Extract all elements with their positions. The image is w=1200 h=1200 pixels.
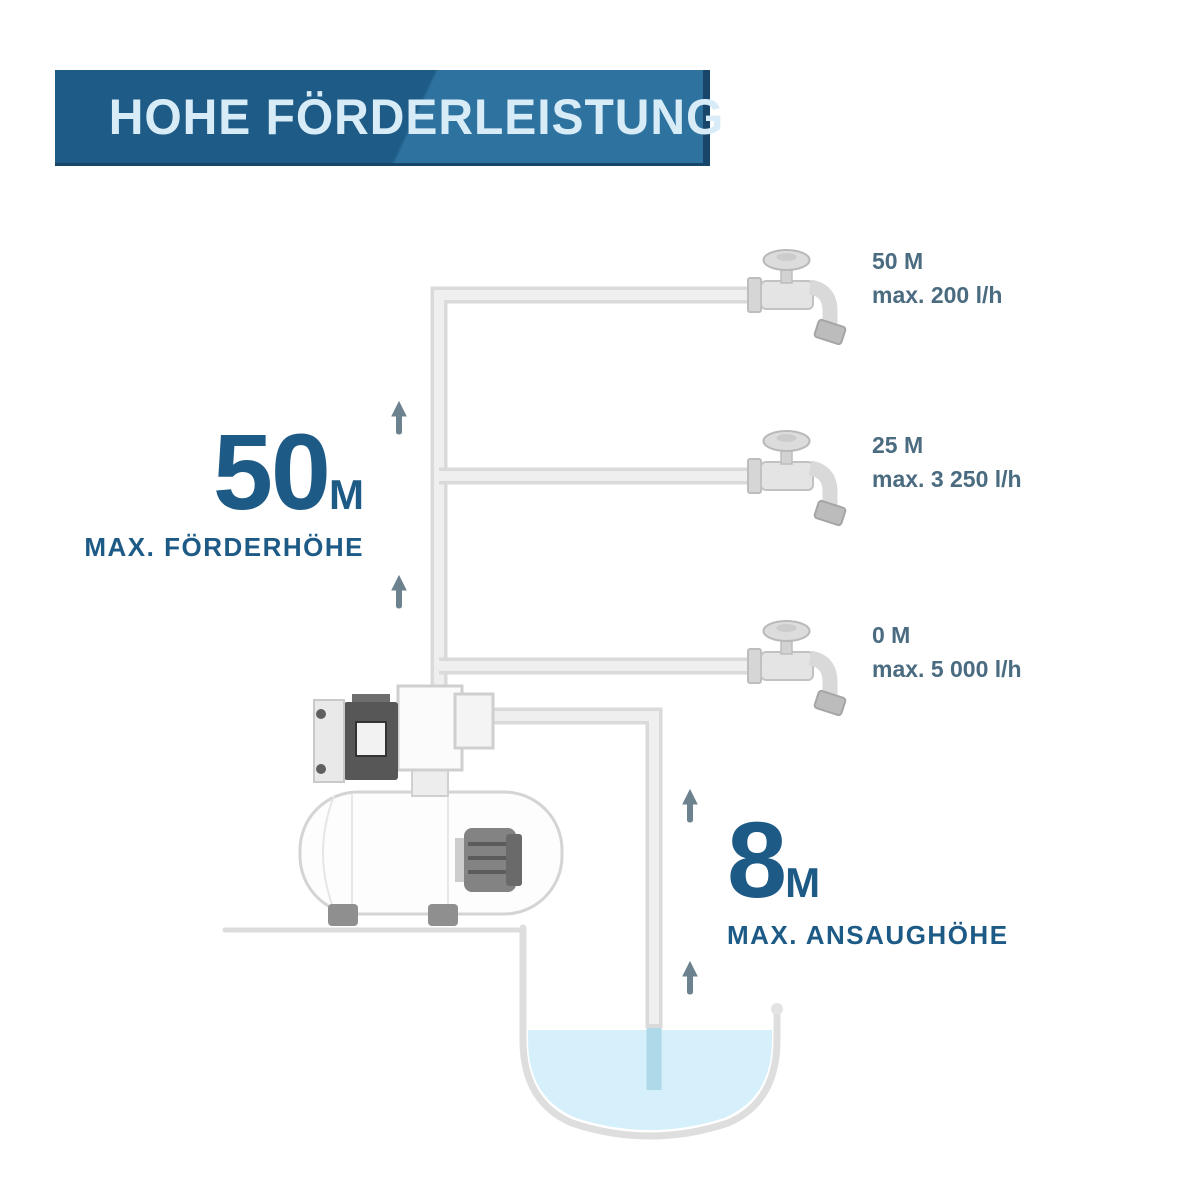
dimension-arrow-icon xyxy=(683,962,697,994)
outlet-label-25m: 25 M max. 3 250 l/h xyxy=(872,428,1022,496)
suction-height-value: 8 xyxy=(727,799,785,920)
outlet-label-0m: 0 M max. 5 000 l/h xyxy=(872,618,1022,686)
max-delivery-head: 50M MAX. FÖRDERHÖHE xyxy=(58,418,364,563)
dimension-arrow-icon xyxy=(683,790,697,822)
pipe-network xyxy=(439,295,750,1028)
riser-pipe-highlight xyxy=(439,295,750,698)
suction-height-label: MAX. ANSAUGHÖHE xyxy=(727,920,1009,951)
faucet-icon xyxy=(748,431,846,526)
pump-foot xyxy=(428,904,458,926)
faucet-icon xyxy=(748,250,846,345)
outlet-flow: max. 200 l/h xyxy=(872,278,1002,312)
delivery-head-unit: M xyxy=(329,471,364,518)
delivery-head-label: MAX. FÖRDERHÖHE xyxy=(58,532,364,563)
outlet-label-50m: 50 M max. 200 l/h xyxy=(872,244,1002,312)
outlet-flow: max. 5 000 l/h xyxy=(872,652,1022,686)
faucet-icon xyxy=(748,621,846,716)
basin-rim-knob xyxy=(771,1003,783,1015)
max-suction-height: 8M MAX. ANSAUGHÖHE xyxy=(727,806,1009,951)
dimension-arrow-icon xyxy=(392,402,406,434)
riser-pipe xyxy=(439,295,750,698)
infographic-canvas: HOHE FÖRDERLEISTUNG xyxy=(0,0,1200,1200)
pump-foot xyxy=(328,904,358,926)
pump-schematic xyxy=(0,0,1200,1200)
outlet-height: 50 M xyxy=(872,244,1002,278)
outlet-height: 25 M xyxy=(872,428,1022,462)
outlet-height: 0 M xyxy=(872,618,1022,652)
outlet-flow: max. 3 250 l/h xyxy=(872,462,1022,496)
dimension-arrow-icon xyxy=(392,576,406,608)
delivery-head-value: 50 xyxy=(213,411,329,532)
suction-height-unit: M xyxy=(785,859,820,906)
